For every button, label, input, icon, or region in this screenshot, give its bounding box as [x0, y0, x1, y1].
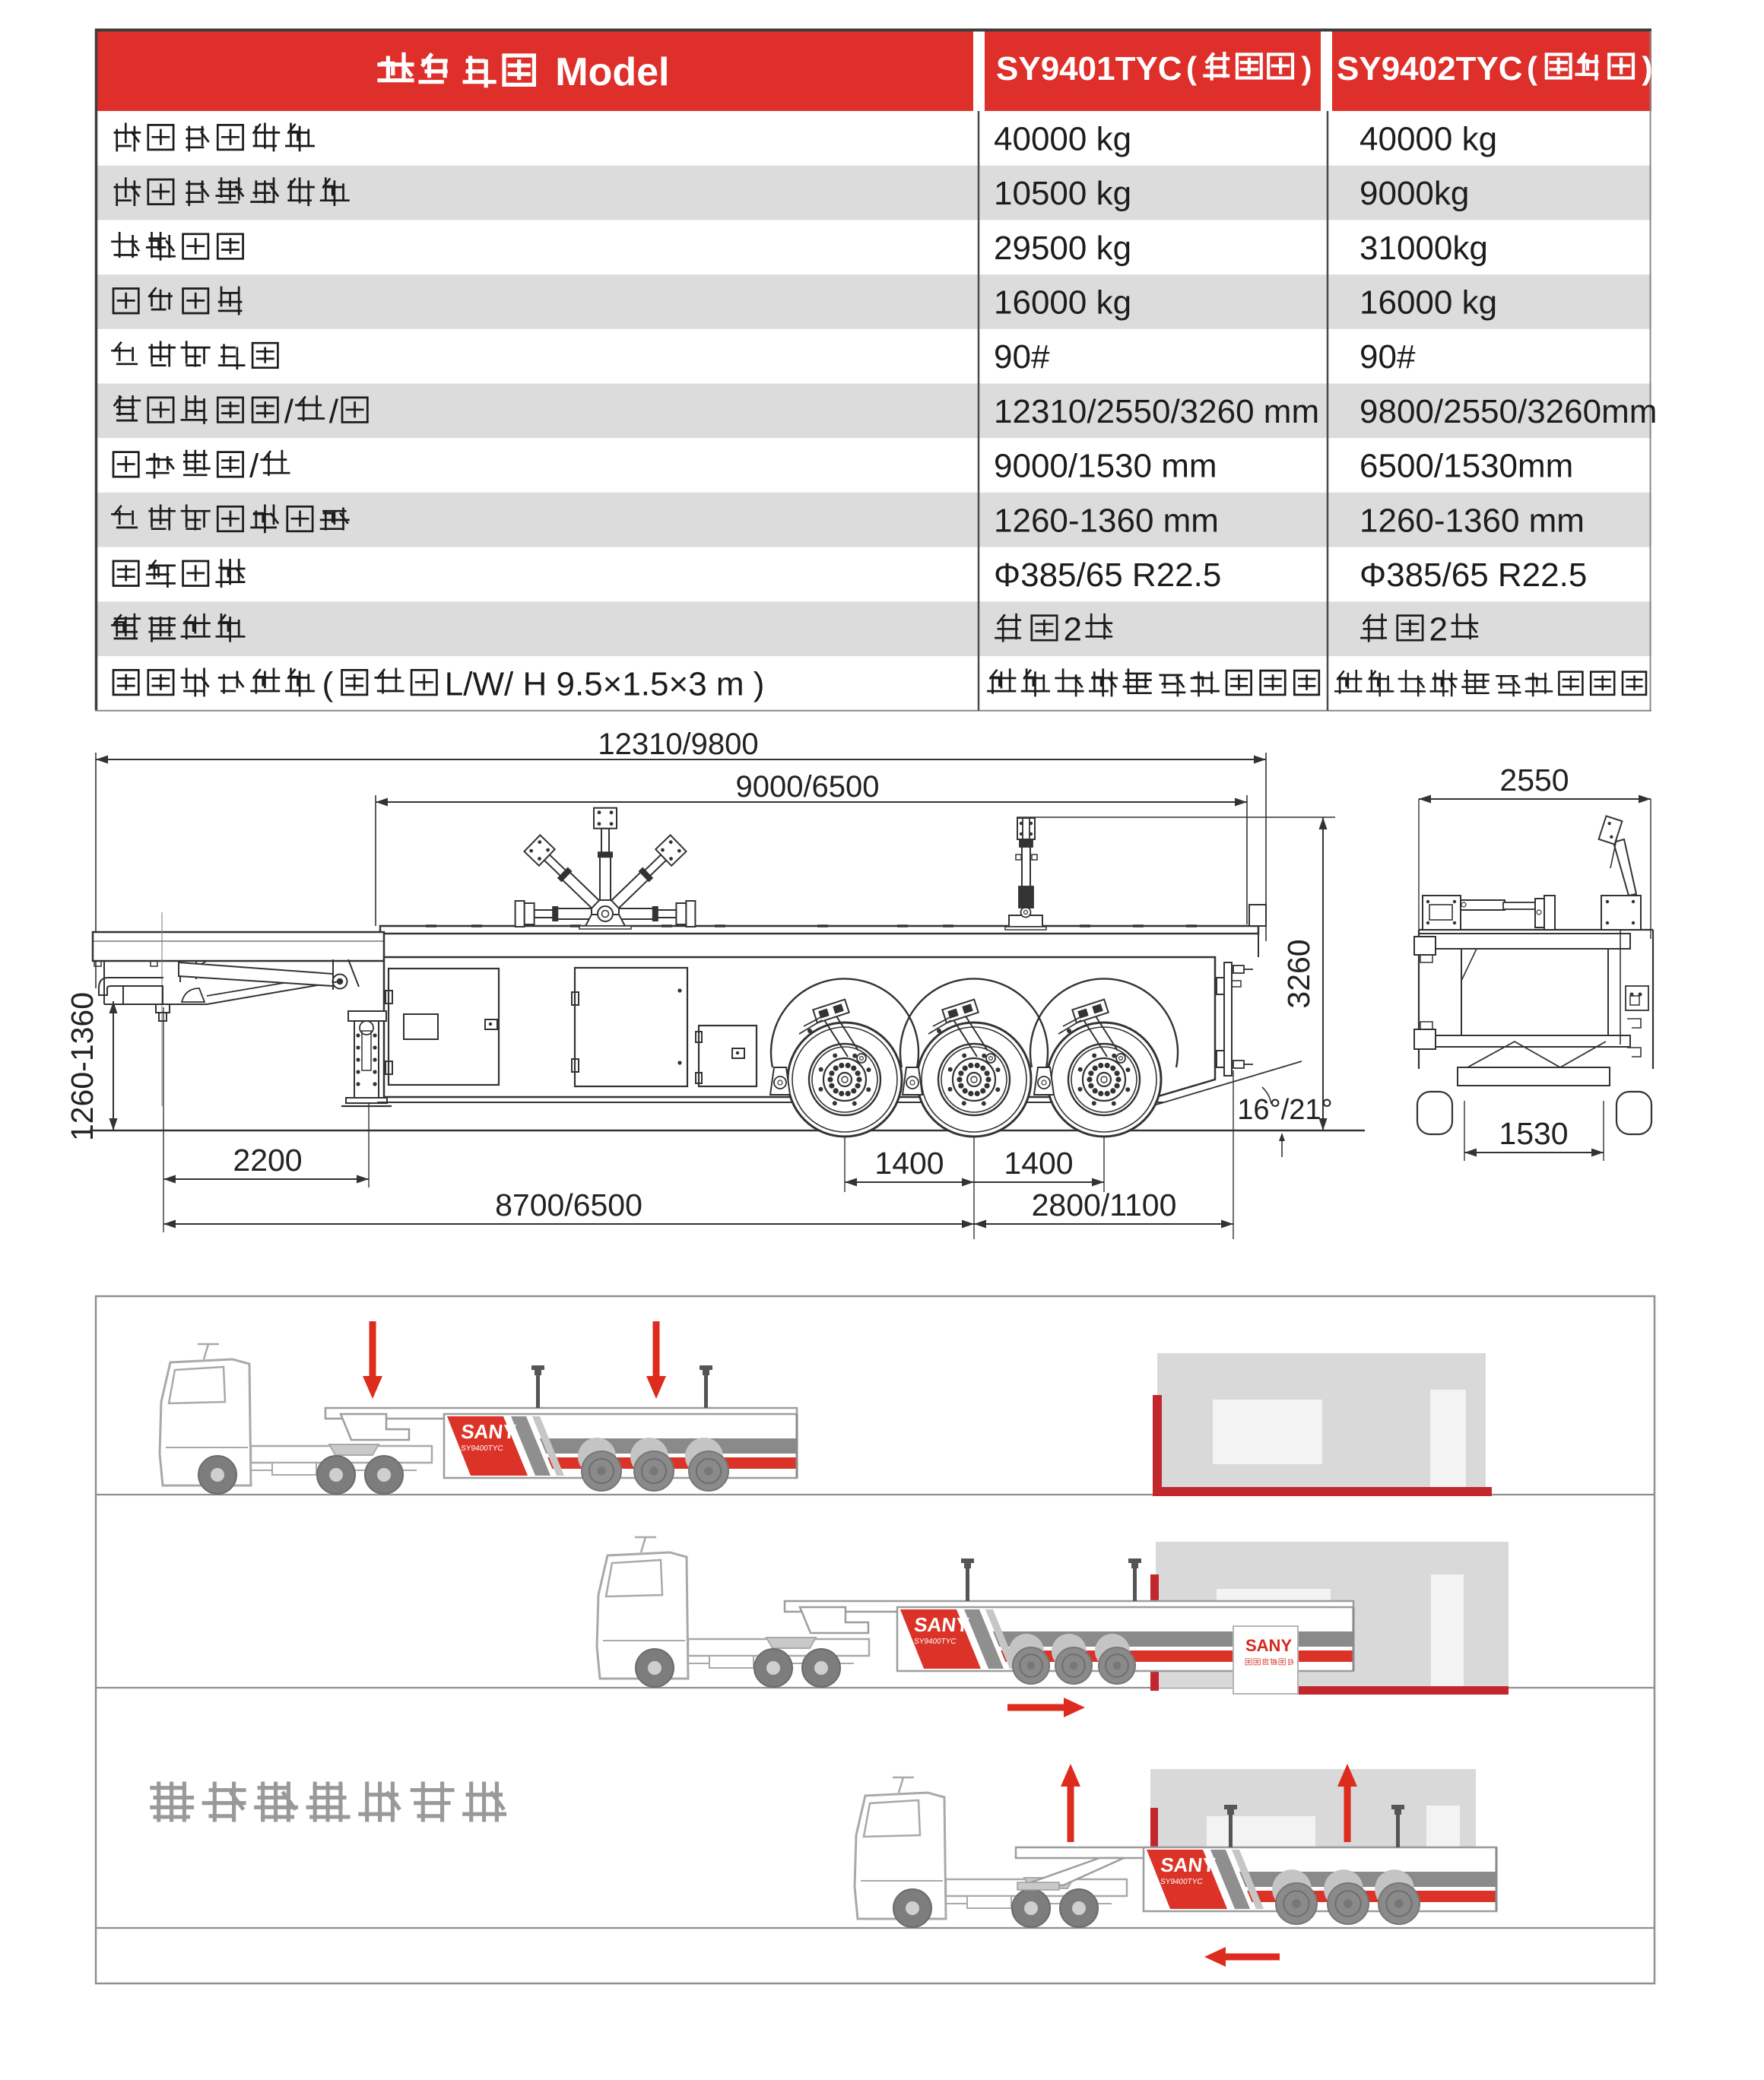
svg-text:1260-1360 mm: 1260-1360 mm [994, 502, 1219, 539]
svg-text:10500 kg: 10500 kg [994, 175, 1131, 212]
svg-text:12310/9800: 12310/9800 [598, 728, 758, 761]
svg-text:SY9400TYC: SY9400TYC [1160, 1878, 1204, 1886]
svg-text:3260: 3260 [1281, 939, 1316, 1008]
svg-text:2: 2 [1064, 611, 1082, 648]
svg-text:/: / [249, 448, 259, 485]
svg-text:9000/1530 mm: 9000/1530 mm [994, 448, 1217, 485]
svg-text:(: ( [1527, 50, 1537, 86]
svg-text:Φ385/65 R22.5: Φ385/65 R22.5 [1359, 556, 1587, 594]
svg-text:2800/1100: 2800/1100 [1032, 1187, 1177, 1222]
svg-text:16000 kg: 16000 kg [1359, 284, 1497, 322]
svg-text:SY9402TYC: SY9402TYC [1337, 50, 1523, 87]
svg-text:9800/2550/3260mm: 9800/2550/3260mm [1359, 393, 1657, 430]
svg-text:90#: 90# [994, 338, 1050, 376]
svg-text:SANY: SANY [1160, 1853, 1217, 1876]
svg-text:6500/1530mm: 6500/1530mm [1359, 448, 1573, 485]
svg-text:16°/21°: 16°/21° [1237, 1094, 1333, 1126]
svg-text:SY9400TYC: SY9400TYC [914, 1638, 957, 1646]
svg-text:2200: 2200 [233, 1143, 302, 1178]
svg-text:90#: 90# [1359, 338, 1416, 376]
svg-text:40000 kg: 40000 kg [994, 120, 1131, 157]
svg-text:SY9400TYC: SY9400TYC [461, 1444, 504, 1453]
svg-text:Φ385/65 R22.5: Φ385/65 R22.5 [994, 556, 1221, 594]
svg-text:L/W/ H 9.5×1.5×3 m ): L/W/ H 9.5×1.5×3 m ) [445, 665, 765, 702]
svg-text:SANY: SANY [460, 1420, 517, 1443]
svg-text:1260-1360: 1260-1360 [65, 992, 100, 1141]
svg-text:SANY: SANY [1245, 1636, 1292, 1655]
svg-text:16000 kg: 16000 kg [994, 284, 1131, 322]
svg-text:(: ( [1186, 50, 1197, 86]
svg-text:Model: Model [555, 50, 669, 94]
svg-text:31000kg: 31000kg [1359, 230, 1488, 267]
svg-text:9000/6500: 9000/6500 [735, 770, 879, 804]
svg-text:9000kg: 9000kg [1359, 175, 1469, 212]
svg-text:1400: 1400 [1004, 1146, 1073, 1181]
svg-text:1260-1360 mm: 1260-1360 mm [1359, 502, 1585, 539]
svg-text:/: / [329, 393, 339, 430]
svg-text:SANY: SANY [913, 1613, 970, 1636]
svg-text:8700/6500: 8700/6500 [495, 1187, 642, 1222]
svg-text:SY9401TYC: SY9401TYC [996, 50, 1182, 87]
svg-text:(: ( [322, 665, 334, 702]
svg-text:12310/2550/3260 mm: 12310/2550/3260 mm [994, 393, 1319, 430]
svg-text:1530: 1530 [1499, 1116, 1568, 1151]
svg-text:1400: 1400 [874, 1146, 944, 1181]
svg-text:): ) [1642, 50, 1653, 86]
svg-text:29500 kg: 29500 kg [994, 230, 1131, 267]
svg-text:2550: 2550 [1499, 763, 1569, 797]
svg-text:/: / [284, 393, 294, 430]
svg-text:2: 2 [1429, 611, 1448, 648]
svg-text:40000 kg: 40000 kg [1359, 120, 1497, 157]
svg-text:): ) [1302, 50, 1312, 86]
